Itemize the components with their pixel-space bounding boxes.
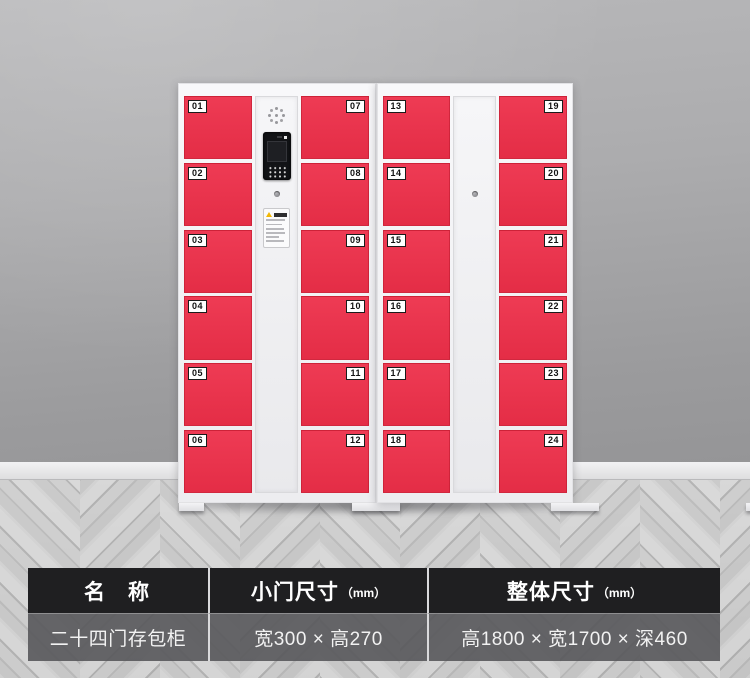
spec-cell-overall-size: 高1800 × 宽1700 × 深460 <box>427 613 720 661</box>
locker-door: 03 <box>184 230 252 293</box>
door-number-badge: 16 <box>387 300 406 313</box>
door-number-badge: 17 <box>387 367 406 380</box>
door-number-badge: 24 <box>544 434 563 447</box>
sticker-title <box>274 213 288 217</box>
door-number-badge: 05 <box>188 367 207 380</box>
header-unit: （mm） <box>341 584 386 601</box>
door-number-badge: 03 <box>188 234 207 247</box>
door-number-badge: 14 <box>387 167 406 180</box>
spec-header-name: 名 称 <box>28 568 208 613</box>
door-number-badge: 21 <box>544 234 563 247</box>
locker-door: 10 <box>301 296 369 359</box>
door-column-1: 01 02 03 04 05 06 <box>184 96 252 493</box>
locker-door: 15 <box>383 230 451 293</box>
door-number-badge: 09 <box>346 234 365 247</box>
header-unit: （mm） <box>597 584 642 601</box>
locker-door: 24 <box>499 430 567 493</box>
keyhole-icon <box>472 191 478 197</box>
locker-foot <box>352 503 400 511</box>
locker-door: 12 <box>301 430 369 493</box>
locker-cabinet-right: 13 14 15 16 17 18 19 20 21 22 23 24 <box>376 83 574 503</box>
notice-sticker <box>263 208 290 248</box>
door-number-badge: 19 <box>544 100 563 113</box>
blank-panel-column <box>453 96 496 493</box>
spec-cell-product-name: 二十四门存包柜 <box>28 613 208 661</box>
locker-door: 18 <box>383 430 451 493</box>
camera-row <box>263 132 291 140</box>
keyhole-icon <box>274 191 280 197</box>
locker-door: 08 <box>301 163 369 226</box>
camera-dot <box>284 136 287 139</box>
intercom-screen <box>267 141 287 162</box>
door-number-badge: 07 <box>346 100 365 113</box>
door-number-badge: 08 <box>346 167 365 180</box>
keypad-dots <box>267 165 286 179</box>
header-label: 名 称 <box>84 576 150 606</box>
locker-door: 13 <box>383 96 451 159</box>
door-column-2: 07 08 09 10 11 12 <box>301 96 369 493</box>
product-photo-scene: 01 02 03 04 05 06 <box>0 0 750 678</box>
locker-door: 22 <box>499 296 567 359</box>
locker-door: 17 <box>383 363 451 426</box>
locker-door: 16 <box>383 296 451 359</box>
spec-header-door-size: 小门尺寸（mm） <box>208 568 427 613</box>
locker-door: 09 <box>301 230 369 293</box>
spec-table: 名 称 小门尺寸（mm） 整体尺寸（mm） 二十四门存包柜 宽300 × 高27… <box>28 568 720 661</box>
locker-door: 04 <box>184 296 252 359</box>
locker-cabinet-left: 01 02 03 04 05 06 <box>178 83 376 503</box>
door-number-badge: 13 <box>387 100 406 113</box>
locker-door: 05 <box>184 363 252 426</box>
header-label: 小门尺寸 <box>251 576 339 606</box>
speaker-grille-icon <box>267 105 287 125</box>
door-number-badge: 12 <box>346 434 365 447</box>
locker-foot <box>179 503 204 511</box>
door-number-badge: 04 <box>188 300 207 313</box>
camera-slit <box>277 136 282 138</box>
door-number-badge: 22 <box>544 300 563 313</box>
door-column-3: 13 14 15 16 17 18 <box>383 96 451 493</box>
spec-header-overall-size: 整体尺寸（mm） <box>427 568 720 613</box>
door-number-badge: 06 <box>188 434 207 447</box>
control-panel-column <box>255 96 298 493</box>
locker-foot <box>746 503 750 511</box>
door-number-badge: 23 <box>544 367 563 380</box>
door-number-badge: 02 <box>188 167 207 180</box>
warning-triangle-icon <box>266 212 272 217</box>
locker-foot <box>551 503 599 511</box>
intercom-keypad-icon <box>263 132 291 180</box>
door-number-badge: 18 <box>387 434 406 447</box>
locker-door: 02 <box>184 163 252 226</box>
door-column-4: 19 20 21 22 23 24 <box>499 96 567 493</box>
door-number-badge: 01 <box>188 100 207 113</box>
locker-door: 14 <box>383 163 451 226</box>
locker-door: 11 <box>301 363 369 426</box>
locker-door: 19 <box>499 96 567 159</box>
locker-door: 06 <box>184 430 252 493</box>
sticker-header <box>266 212 287 217</box>
door-number-badge: 20 <box>544 167 563 180</box>
locker-door: 07 <box>301 96 369 159</box>
door-number-badge: 10 <box>346 300 365 313</box>
locker-door: 21 <box>499 230 567 293</box>
storage-locker: 01 02 03 04 05 06 <box>178 83 573 503</box>
locker-door: 23 <box>499 363 567 426</box>
spec-cell-door-size: 宽300 × 高270 <box>208 613 427 661</box>
locker-door: 20 <box>499 163 567 226</box>
door-number-badge: 15 <box>387 234 406 247</box>
door-number-badge: 11 <box>346 367 365 380</box>
locker-door: 01 <box>184 96 252 159</box>
header-label: 整体尺寸 <box>507 576 595 606</box>
